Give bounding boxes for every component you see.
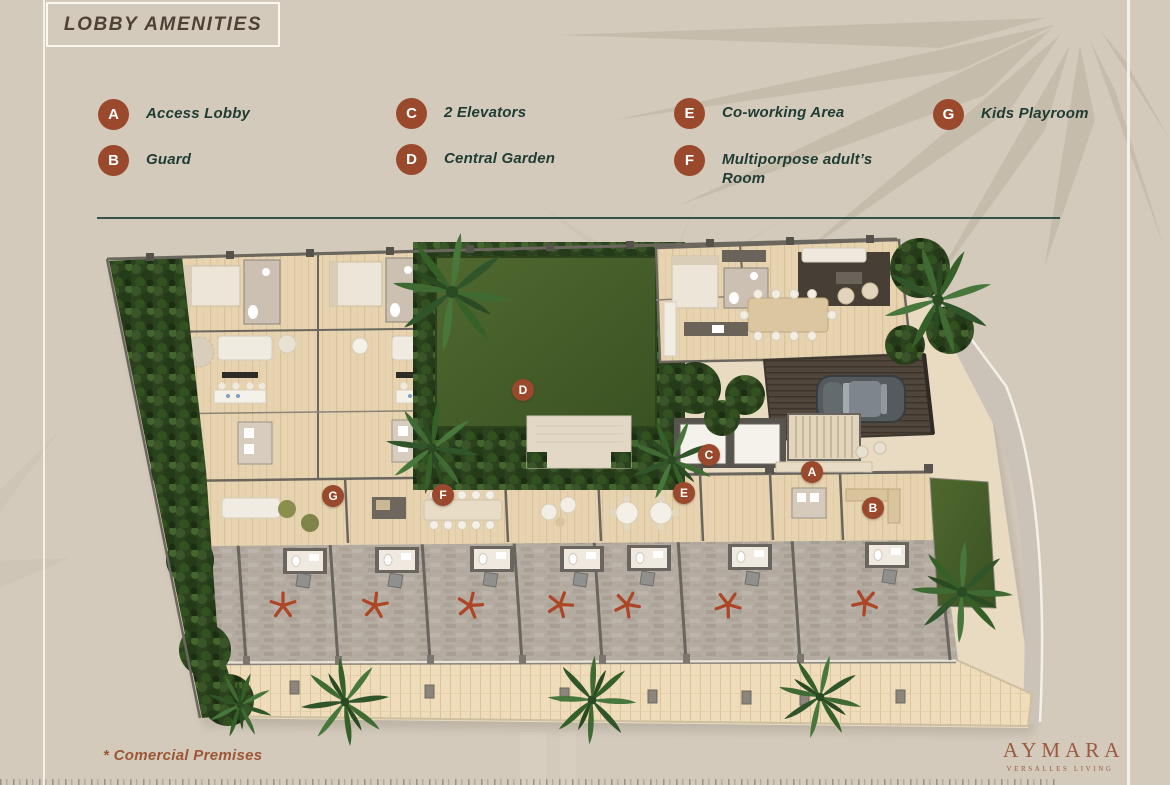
right-margin-line xyxy=(1127,0,1130,785)
legend-label: Multiporpose adult’s Room xyxy=(722,145,904,189)
legend-item-guard: B Guard xyxy=(98,145,191,176)
legend-label: Co-working Area xyxy=(722,104,844,123)
legend-item-kids-playroom: G Kids Playroom xyxy=(933,99,1089,130)
legend-badge-c: C xyxy=(396,98,427,129)
legend-badge-b: B xyxy=(98,145,129,176)
bean-bag xyxy=(301,514,319,532)
legend-badge-f: F xyxy=(674,145,705,176)
bean-bag xyxy=(278,500,296,518)
brand-block: AYMARA VERSALLES LIVING xyxy=(998,738,1122,773)
page-title: LOBBY AMENITIES xyxy=(64,14,262,36)
legend-label: Guard xyxy=(146,151,191,170)
legend-item-elevators: C 2 Elevators xyxy=(396,98,526,129)
kids-daybed xyxy=(222,498,280,518)
commercial-premises xyxy=(208,536,958,665)
legend-badge-g: G xyxy=(933,99,964,130)
legend-badge-a: A xyxy=(98,99,129,130)
legend-item-coworking: E Co-working Area xyxy=(674,98,844,129)
cutoff-text-strip xyxy=(0,779,1055,785)
boardwalk xyxy=(198,657,1032,726)
legend-label: Access Lobby xyxy=(146,105,250,124)
site xyxy=(107,219,1042,764)
dining-table xyxy=(748,298,828,332)
legend-label: Central Garden xyxy=(444,150,555,169)
brand-tagline: VERSALLES LIVING xyxy=(998,765,1122,773)
garden-patio xyxy=(527,416,631,468)
apartment-right xyxy=(656,240,911,362)
legend-badge-e: E xyxy=(674,98,705,129)
legend-label: 2 Elevators xyxy=(444,104,526,123)
brand-name: AYMARA xyxy=(1003,738,1122,763)
legend-divider xyxy=(97,217,1060,219)
left-margin-line xyxy=(43,0,45,785)
title-box: LOBBY AMENITIES xyxy=(46,2,280,47)
legend-badge-d: D xyxy=(396,144,427,175)
footnote: * Comercial Premises xyxy=(103,747,262,764)
page: LOBBY AMENITIES A Access Lobby B Guard C… xyxy=(0,0,1170,785)
legend-label: Kids Playroom xyxy=(981,105,1089,124)
legend-item-access-lobby: A Access Lobby xyxy=(98,99,250,130)
long-table xyxy=(424,500,502,520)
legend-item-multipurpose-room: F Multiporpose adult’s Room xyxy=(674,145,904,189)
legend-item-central-garden: D Central Garden xyxy=(396,144,555,175)
